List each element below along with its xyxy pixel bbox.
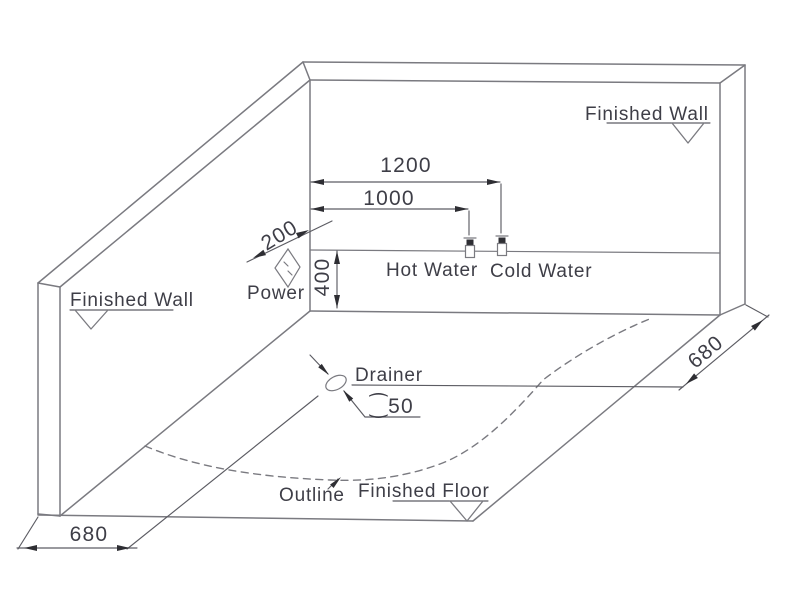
left-wall-cap-top-edge bbox=[38, 283, 60, 287]
corner-apex-edge bbox=[303, 62, 310, 80]
floor-right-edge bbox=[473, 315, 720, 521]
finished-wall-left-label: Finished Wall bbox=[70, 290, 194, 311]
floor-front-edge bbox=[38, 515, 473, 521]
drainer-label: Drainer bbox=[355, 365, 423, 386]
right-wall-top-bevel bbox=[720, 65, 745, 83]
hot-water-valve-icon bbox=[464, 238, 476, 258]
dim-1000-value: 1000 bbox=[363, 187, 415, 210]
drain-diameter-value: ⁐50 bbox=[369, 393, 414, 418]
right-wall-inner-top-edge bbox=[310, 80, 720, 83]
dim-400: 400 bbox=[311, 251, 340, 308]
drain-icon bbox=[323, 372, 349, 394]
left-wall-floor-junction bbox=[60, 311, 310, 516]
left-wall-inner-top-edge bbox=[60, 80, 310, 287]
dim-400-value: 400 bbox=[311, 258, 334, 297]
right-wall-floor-junction bbox=[310, 311, 720, 315]
outline-callout: Outline bbox=[279, 477, 345, 506]
finished-wall-right-label: Finished Wall bbox=[585, 104, 709, 125]
drain: ⁐50 Drainer bbox=[310, 355, 683, 418]
finished-floor: Finished Floor bbox=[358, 481, 490, 521]
dim-680-right-value: 680 bbox=[684, 331, 728, 373]
dim-680-right-wall-extension bbox=[746, 305, 768, 317]
hot-water-label: Hot Water bbox=[386, 260, 478, 281]
right-wall-outer-top-edge bbox=[303, 62, 745, 65]
finished-wall-left: Finished Wall bbox=[70, 290, 194, 329]
bathtub-rough-in-diagram: 1200 1000 200 400 680 680 bbox=[0, 0, 788, 600]
dim-1200-value: 1200 bbox=[380, 154, 432, 177]
drain-extension-line-left bbox=[127, 396, 318, 549]
power-label: Power bbox=[247, 283, 305, 304]
dim-680-right: 680 bbox=[679, 305, 769, 390]
dim-680-left: 680 bbox=[17, 396, 318, 551]
wall-finish-triangle-right-icon bbox=[672, 123, 704, 143]
power-outlet-icon bbox=[275, 249, 300, 287]
right-wall-bottom-bevel bbox=[720, 304, 745, 315]
floor-finish-triangle-icon bbox=[450, 501, 483, 521]
water-supply-line bbox=[310, 250, 720, 253]
cold-water-valve-icon bbox=[496, 236, 508, 256]
dim-680-left-wall-extension bbox=[18, 517, 38, 549]
dim-1000: 1000 bbox=[311, 187, 469, 235]
finished-floor-label: Finished Floor bbox=[358, 481, 490, 502]
finished-wall-right: Finished Wall bbox=[585, 104, 710, 143]
wall-finish-triangle-left-icon bbox=[75, 310, 108, 329]
dim-680-left-value: 680 bbox=[70, 523, 109, 546]
outline-label: Outline bbox=[279, 485, 345, 506]
dim-200-value: 200 bbox=[257, 216, 302, 256]
cold-water-label: Cold Water bbox=[490, 261, 592, 282]
installation-diagram-page: 1200 1000 200 400 680 680 bbox=[0, 0, 788, 600]
